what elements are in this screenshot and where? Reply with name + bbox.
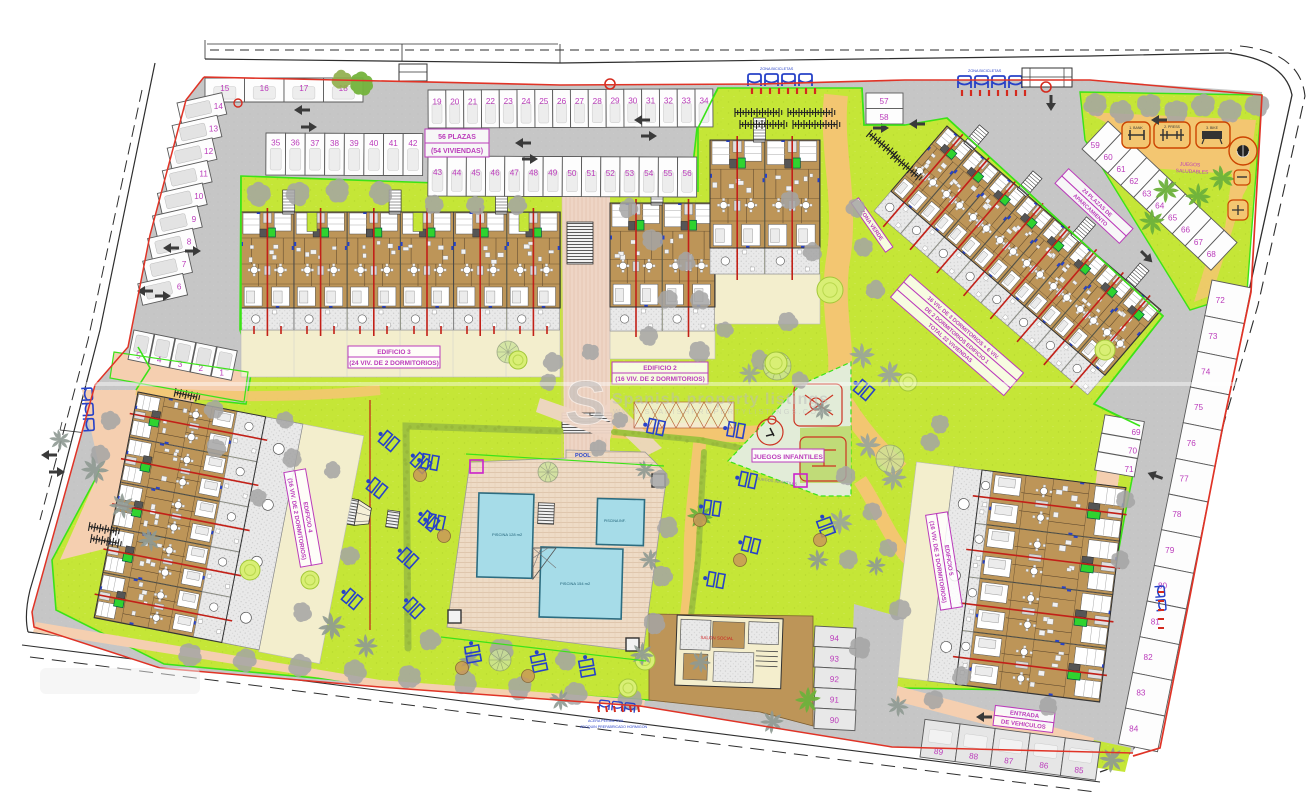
svg-text:PISCINA INF.: PISCINA INF.: [604, 519, 626, 523]
svg-text:45: 45: [471, 168, 481, 177]
svg-text:83: 83: [1136, 689, 1146, 698]
svg-text:13: 13: [209, 124, 219, 133]
svg-text:90: 90: [830, 716, 840, 725]
svg-text:74: 74: [1201, 368, 1211, 377]
svg-text:PISCINA 154 m2: PISCINA 154 m2: [560, 581, 591, 586]
svg-text:1. BANK: 1. BANK: [1129, 126, 1143, 130]
svg-text:60: 60: [1104, 153, 1114, 162]
svg-text:73: 73: [1208, 332, 1218, 341]
svg-text:40: 40: [369, 139, 379, 148]
svg-text:54: 54: [644, 169, 654, 178]
svg-text:29: 29: [610, 97, 620, 106]
svg-text:67: 67: [1194, 238, 1204, 247]
svg-text:2. PRESS: 2. PRESS: [1164, 125, 1180, 129]
svg-text:ACERA PERIMETRAL: ACERA PERIMETRAL: [588, 719, 624, 723]
svg-text:17: 17: [299, 84, 309, 93]
svg-text:27: 27: [575, 97, 585, 106]
svg-text:82: 82: [1144, 653, 1154, 662]
svg-text:37: 37: [310, 139, 320, 148]
svg-text:64: 64: [1155, 201, 1165, 210]
svg-text:4: 4: [157, 356, 162, 365]
svg-text:59: 59: [1091, 141, 1101, 150]
svg-text:69: 69: [1131, 428, 1141, 437]
svg-text:ZONA BICICLETAS: ZONA BICICLETAS: [968, 69, 1002, 73]
svg-text:15: 15: [220, 84, 230, 93]
svg-text:6: 6: [177, 283, 182, 292]
svg-text:30: 30: [628, 97, 638, 106]
svg-text:63: 63: [1142, 189, 1152, 198]
svg-text:78: 78: [1172, 510, 1182, 519]
svg-text:68: 68: [1207, 250, 1217, 259]
svg-text:23: 23: [504, 97, 514, 106]
svg-text:65: 65: [1168, 214, 1178, 223]
svg-text:1: 1: [219, 368, 224, 377]
svg-text:25: 25: [539, 97, 549, 106]
svg-text:POOL: POOL: [575, 453, 591, 459]
svg-text:22: 22: [486, 97, 496, 106]
svg-text:87: 87: [1004, 756, 1015, 766]
svg-text:86: 86: [1039, 761, 1050, 771]
svg-text:10: 10: [194, 192, 204, 201]
svg-text:58: 58: [879, 113, 889, 122]
svg-text:52: 52: [606, 169, 616, 178]
svg-text:43: 43: [433, 168, 443, 177]
svg-text:77: 77: [1180, 475, 1190, 484]
svg-text:S: S: [565, 369, 606, 438]
svg-text:38: 38: [330, 139, 340, 148]
svg-text:46: 46: [491, 169, 501, 178]
svg-text:62: 62: [1129, 177, 1139, 186]
svg-text:44: 44: [452, 168, 462, 177]
svg-text:61: 61: [1116, 165, 1126, 174]
svg-text:34: 34: [699, 96, 709, 105]
svg-text:72: 72: [1216, 296, 1226, 305]
svg-text:91: 91: [830, 695, 840, 704]
svg-text:ADOQUIN PREFABRICADO HORMIGON: ADOQUIN PREFABRICADO HORMIGON: [580, 725, 647, 729]
svg-text:JUEGOS: JUEGOS: [1180, 161, 1202, 168]
svg-text:11: 11: [199, 170, 208, 179]
svg-text:66: 66: [1181, 226, 1191, 235]
svg-text:12: 12: [204, 147, 214, 156]
svg-text:93: 93: [830, 654, 840, 663]
svg-text:92: 92: [830, 675, 840, 684]
svg-text:84: 84: [1129, 724, 1139, 733]
svg-text:21: 21: [468, 97, 478, 106]
svg-text:8: 8: [187, 237, 192, 246]
svg-text:39: 39: [350, 139, 360, 148]
svg-text:24: 24: [521, 97, 531, 106]
svg-text:41: 41: [389, 139, 399, 148]
svg-text:Spanish property listings: Spanish property listings: [612, 391, 829, 408]
svg-text:9: 9: [192, 215, 197, 224]
svg-text:70: 70: [1128, 447, 1138, 456]
svg-text:53: 53: [625, 169, 635, 178]
svg-text:36: 36: [291, 139, 301, 148]
svg-text:42: 42: [408, 139, 418, 148]
svg-text:ZONA BICICLETAS: ZONA BICICLETAS: [760, 67, 794, 71]
svg-text:35: 35: [271, 139, 281, 148]
svg-text:55: 55: [663, 169, 673, 178]
svg-text:(54 VIVIENDAS): (54 VIVIENDAS): [431, 148, 483, 155]
svg-text:16: 16: [260, 84, 270, 93]
svg-text:48: 48: [529, 169, 539, 178]
svg-text:47: 47: [510, 169, 520, 178]
svg-text:14: 14: [214, 102, 224, 111]
svg-text:EDIFICIO 2: EDIFICIO 2: [643, 365, 677, 372]
svg-text:W W W . S P A N I S H P R O P: W W W . S P A N I S H P R O P E R T Y L …: [613, 407, 824, 416]
svg-text:PISCINA 128 m2: PISCINA 128 m2: [492, 532, 523, 537]
svg-text:20: 20: [450, 97, 460, 106]
svg-text:19: 19: [432, 97, 442, 106]
svg-text:51: 51: [587, 169, 597, 178]
svg-text:26: 26: [557, 97, 567, 106]
svg-text:56 PLAZAS: 56 PLAZAS: [438, 134, 476, 141]
svg-text:75: 75: [1194, 403, 1204, 412]
svg-text:49: 49: [548, 169, 558, 178]
svg-text:32: 32: [664, 97, 674, 106]
svg-text:(24 VIV. DE 2 DORMITORIOS): (24 VIV. DE 2 DORMITORIOS): [349, 360, 439, 367]
svg-text:57: 57: [879, 97, 889, 106]
svg-text:(16 VIV. DE 2 DORMITORIOS): (16 VIV. DE 2 DORMITORIOS): [615, 376, 705, 383]
svg-text:JUEGOS INFANTILES: JUEGOS INFANTILES: [753, 454, 823, 461]
svg-text:50: 50: [567, 169, 577, 178]
svg-text:79: 79: [1165, 546, 1175, 555]
svg-text:EDIFICIO 3: EDIFICIO 3: [377, 349, 411, 356]
svg-text:31: 31: [646, 97, 656, 106]
svg-text:71: 71: [1124, 465, 1134, 474]
svg-text:7: 7: [182, 260, 187, 269]
svg-text:76: 76: [1187, 439, 1197, 448]
svg-text:94: 94: [830, 634, 840, 643]
svg-text:28: 28: [593, 97, 603, 106]
svg-text:3. BIKE: 3. BIKE: [1206, 126, 1219, 130]
svg-text:33: 33: [682, 96, 692, 105]
svg-text:88: 88: [969, 751, 980, 761]
svg-text:85: 85: [1074, 765, 1085, 775]
svg-text:56: 56: [683, 169, 693, 178]
